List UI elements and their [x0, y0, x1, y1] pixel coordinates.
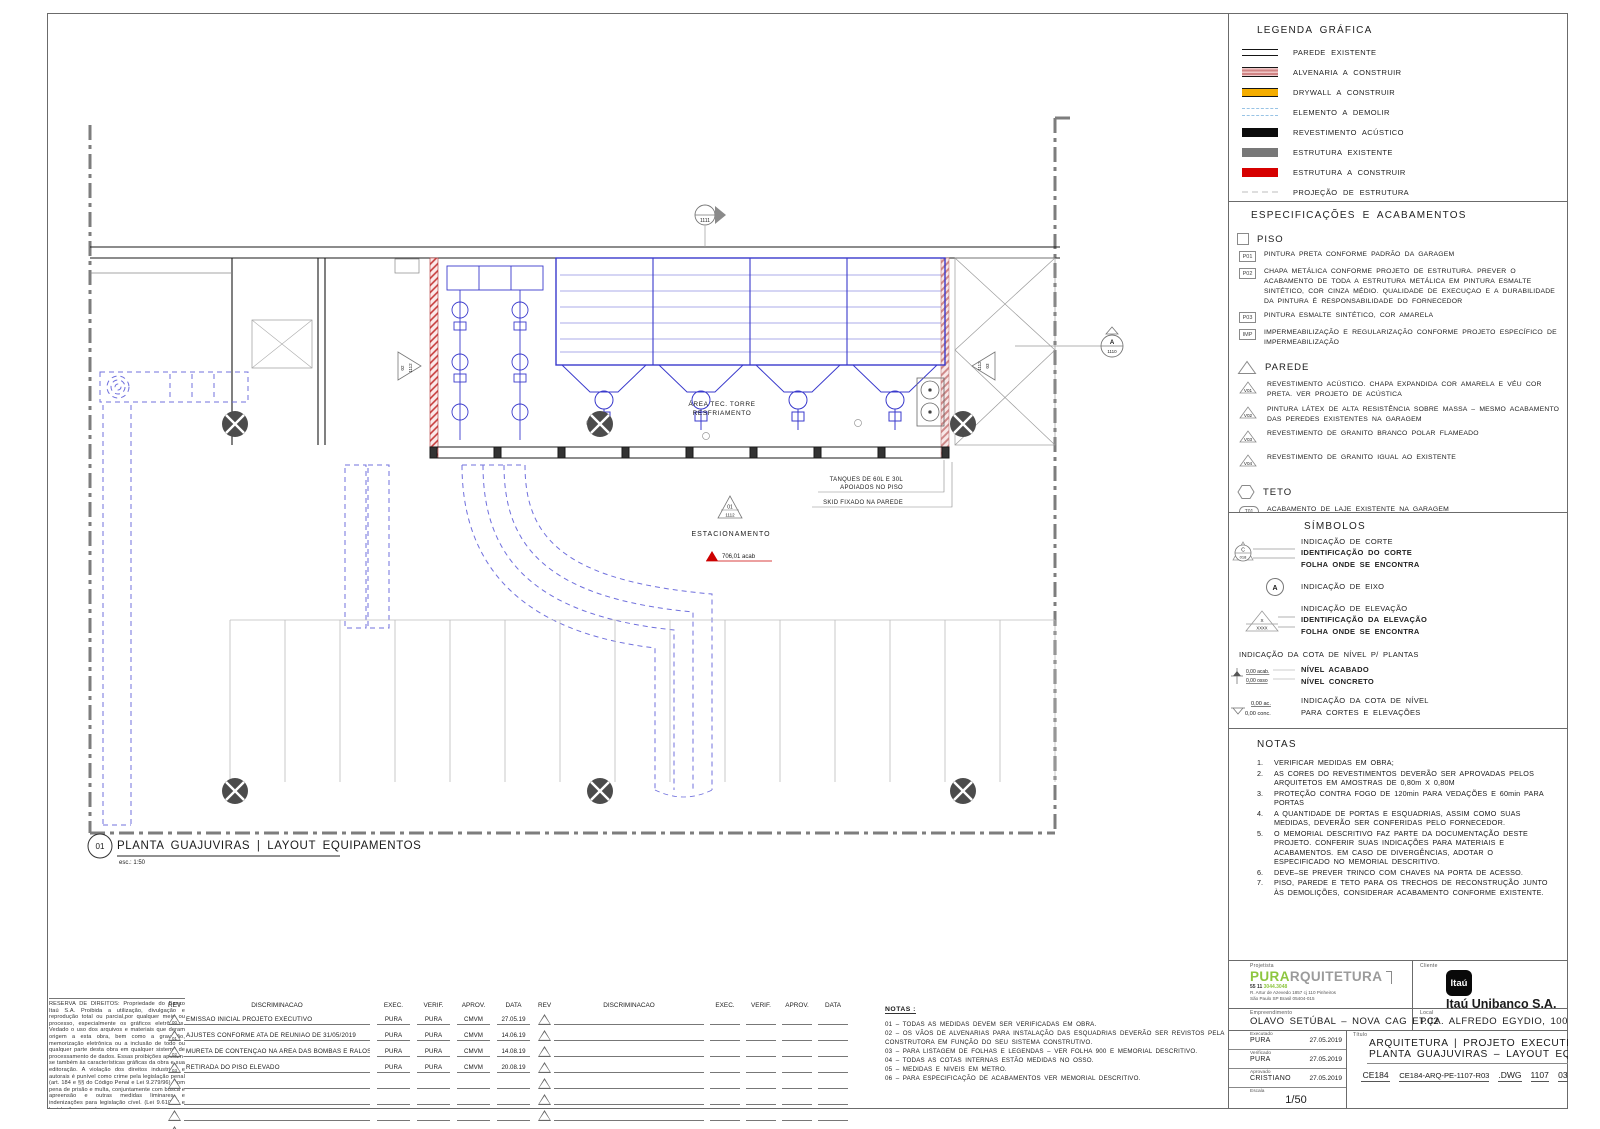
piso-symbol — [1237, 233, 1249, 245]
elevation-marker-left: 02 1112 — [398, 352, 421, 380]
piso-group-header: PISO — [1237, 233, 1568, 245]
legend-item: PROJEÇÃO DE ESTRUTURA — [1229, 182, 1568, 201]
svg-text:V04: V04 — [1244, 461, 1253, 466]
structure-projection-swatch — [1242, 191, 1278, 193]
spec-tag: V04 — [1239, 454, 1259, 472]
symbols-section: SÍMBOLOS C018 INDICAÇÃO DE CORTEIDENTIFI… — [1229, 512, 1568, 728]
revision-row-empty — [538, 1057, 848, 1073]
svg-text:1112: 1112 — [725, 513, 735, 518]
drawing-sheet: 1111 A 1110 02 1112 03 1112 01 1112 — [0, 0, 1600, 1129]
svg-text:C: C — [1241, 548, 1245, 554]
legend-item: PAREDE EXISTENTE — [1229, 42, 1568, 62]
axis-icon: A — [1229, 577, 1301, 597]
revision-triangle-icon — [538, 1078, 551, 1089]
legend-title: LEGENDA GRÁFICA — [1257, 25, 1568, 36]
revision-table-header: REV DISCRIMINACAO EXEC. VERIF. APROV. DA… — [168, 996, 530, 1009]
floor-plan: 1111 A 1110 02 1112 03 1112 01 1112 — [0, 0, 1228, 1000]
plan-title: 01 PLANTA GUAJUVIRAS | LAYOUT EQUIPAMENT… — [88, 834, 421, 866]
structure-existing-swatch — [1242, 148, 1278, 157]
spec-tag: P01 — [1239, 251, 1256, 262]
revision-row: 00 EMISSÃO INICIAL PROJETO EXECUTIVOPURA… — [168, 1009, 530, 1025]
sheet-title-1: ARQUITETURA | PROJETO EXECUTIVO — [1369, 1038, 1568, 1049]
elevation-marker-right-2: 03 1112 — [972, 352, 995, 380]
notes-bottom: NOTAS : 01 – TODAS AS MEDIDAS DEVEM SER … — [885, 998, 1230, 1084]
revision-row-empty — [538, 1073, 848, 1089]
svg-text:XXXX: XXXX — [1256, 626, 1267, 631]
spec-item: V01REVESTIMENTO ACÚSTICO. CHAPA EXPANDID… — [1239, 380, 1568, 400]
aprovado-row: Aprovado CRISTIANO27.05.2019 — [1229, 1069, 1346, 1088]
tech-room-bottom-wall — [430, 420, 949, 459]
svg-text:03: 03 — [985, 363, 990, 369]
revision-row-empty — [168, 1121, 530, 1129]
parede-symbol — [1237, 360, 1257, 375]
sheet-title-2: PLANTA GUAJUVIRAS – LAYOUT EQUIPAMENTO — [1369, 1049, 1568, 1060]
legend-section: LEGENDA GRÁFICA PAREDE EXISTENTE ALVENAR… — [1229, 13, 1568, 201]
acoustic-swatch — [1242, 128, 1278, 137]
revision-table-2: REV DISCRIMINACAO EXEC. VERIF. APROV. DA… — [538, 996, 848, 1121]
revision-triangle-icon — [538, 1110, 551, 1121]
svg-text:1110: 1110 — [1107, 349, 1117, 354]
sheet-number: 1107 — [1531, 1070, 1549, 1082]
titulo-cell: Título ARQUITETURA | PROJETO EXECUTIVO P… — [1347, 1031, 1568, 1109]
demolition-elements — [100, 372, 712, 825]
spec-tag: IMP — [1239, 329, 1256, 340]
spec-tag: V01 — [1239, 381, 1259, 400]
notes-right-section: NOTAS 1.VERIFICAR MEDIDAS EM OBRA; 2.AS … — [1229, 728, 1568, 960]
bottom-note: 03 – PARA LISTAGEM DE FOLHAS E LEGENDAS … — [885, 1048, 1230, 1057]
revision-triangle-icon — [168, 1110, 181, 1121]
level-section-icon: 0,00 ac.0,00 conc. — [1229, 695, 1301, 721]
escala-value: 1/50 — [1250, 1094, 1342, 1106]
revision-row: 02 MURETA DE CONTENÇÃO NA ÁREA DAS BOMBA… — [168, 1041, 530, 1057]
svg-text:X: X — [1260, 618, 1263, 623]
revision-row-empty — [168, 1073, 530, 1089]
area-tec-label-1: ÁREA TEC. TORRE — [688, 399, 755, 408]
revision-triangle-icon — [538, 1014, 551, 1025]
teto-symbol — [1237, 484, 1255, 500]
verificado-row: Verificado PURA27.05.2019 — [1229, 1050, 1346, 1069]
executado-row: Executado PURA27.05.2019 — [1229, 1031, 1346, 1050]
spec-item: V02PINTURA LÁTEX DE ALTA RESISTÊNCIA SOB… — [1239, 405, 1568, 425]
right-panel: LEGENDA GRÁFICA PAREDE EXISTENTE ALVENAR… — [1229, 13, 1568, 1109]
note-item: 7.PISO, PAREDE E TETO PARA OS TRECHOS DE… — [1257, 878, 1568, 897]
elevation-marker-plan: 01 1112 — [718, 496, 742, 518]
revision-row-empty — [168, 1089, 530, 1105]
masonry-swatch — [1242, 67, 1278, 77]
svg-text:01: 01 — [96, 842, 105, 851]
new-structure-wall-left — [430, 258, 438, 458]
revision-triangle-icon: 02 — [168, 1046, 181, 1057]
drywall-swatch — [1242, 88, 1278, 97]
pump-skid — [447, 266, 543, 440]
spec-item: V03REVESTIMENTO DE GRANITO BRANCO POLAR … — [1239, 429, 1568, 448]
teto-group-header: TETO — [1237, 484, 1568, 500]
svg-text:1112: 1112 — [977, 361, 982, 371]
revision-row: 01 AJUSTES CONFORME ATA DE REUNIÃO DE 31… — [168, 1025, 530, 1041]
spec-item: P01PINTURA PRETA CONFORME PADRÃO DA GARA… — [1239, 250, 1568, 262]
legend-item: DRYWALL A CONSTRUIR — [1229, 82, 1568, 102]
bottom-note: 01 – TODAS AS MEDIDAS DEVEM SER VERIFICA… — [885, 1021, 1230, 1030]
svg-text:0,00 acab.: 0,00 acab. — [1246, 669, 1269, 675]
revision-triangle-icon: 01 — [168, 1030, 181, 1041]
revision-triangle-icon — [538, 1046, 551, 1057]
svg-text:V01: V01 — [1244, 388, 1253, 393]
note-item: 5.O MEMORIAL DESCRITIVO FAZ PARTE DA DOC… — [1257, 829, 1568, 867]
structure-new-swatch — [1242, 168, 1278, 177]
projetista-cell: Projetista PURARQUITETURA 55 11 3044.304… — [1229, 961, 1413, 1009]
legend-item: ESTRUTURA EXISTENTE — [1229, 142, 1568, 162]
demolish-swatch — [1242, 108, 1278, 116]
empreendimento-cell: Empreendimento OLAVO SETÚBAL – NOVA CAG … — [1229, 1009, 1413, 1031]
symbol-corte: C018 INDICAÇÃO DE CORTEIDENTIFICAÇÃO DO … — [1229, 536, 1568, 570]
columns — [222, 411, 976, 804]
level-plan-icon: 0,00 acab.0,00 osso — [1229, 664, 1301, 688]
revision-triangle-icon — [168, 1078, 181, 1089]
revision-triangle-icon: 03 — [168, 1062, 181, 1073]
svg-text:706,01 acab: 706,01 acab — [722, 554, 756, 560]
spec-item: P03PINTURA ESMALTE SINTÉTICO, COR AMAREL… — [1239, 311, 1568, 323]
svg-text:1112: 1112 — [408, 363, 413, 373]
revision-row-empty — [538, 1105, 848, 1121]
area-tec-label-2: RESFRIAMENTO — [693, 410, 752, 417]
svg-text:V02: V02 — [1244, 413, 1253, 418]
note-item: 1.VERIFICAR MEDIDAS EM OBRA; — [1257, 758, 1568, 768]
svg-text:01: 01 — [727, 505, 733, 511]
signatures-column: Executado PURA27.05.2019 Verificado PURA… — [1229, 1031, 1347, 1109]
revision-triangle-icon — [168, 1094, 181, 1105]
spec-tag: V03 — [1239, 430, 1259, 448]
legend-item: ELEMENTO A DEMOLIR — [1229, 102, 1568, 122]
legend-item: ALVENARIA A CONSTRUIR — [1229, 62, 1568, 82]
title-block: Projetista PURARQUITETURA 55 11 3044.304… — [1229, 960, 1568, 1109]
note-item: 3.PROTEÇÃO CONTRA FOGO DE 120min PARA VE… — [1257, 789, 1568, 808]
parking-stalls — [230, 620, 1055, 782]
specs-section: ESPECIFICAÇÕES E ACABAMENTOS PISO P01PIN… — [1229, 201, 1568, 512]
note-item: 6.DEVE–SE PREVER TRINCO COM CHAVES NA PO… — [1257, 868, 1568, 878]
brand-bracket-icon — [1386, 971, 1392, 984]
revision-row-empty — [538, 1089, 848, 1105]
existing-wall-swatch — [1242, 49, 1278, 56]
spec-item: IMPIMPERMEABILIZAÇÃO E REGULARIZAÇÃO CON… — [1239, 328, 1568, 348]
codes-row: CE184 CE184-ARQ-PE-1107-R03 .DWG 1107 03 — [1361, 1070, 1568, 1082]
parking-label: ESTACIONAMENTO — [691, 531, 770, 538]
svg-text:SKID FIXADO NA PAREDE: SKID FIXADO NA PAREDE — [823, 500, 903, 506]
revision-row-empty — [538, 1041, 848, 1057]
note-item: 4.A QUANTIDADE DE PORTAS E ESQUADRIAS, A… — [1257, 809, 1568, 828]
parede-group-header: PAREDE — [1237, 360, 1568, 375]
wall-skid — [917, 378, 944, 426]
bottom-note: 04 – TODAS AS COTAS INTERNAS ESTÃO MEDID… — [885, 1057, 1230, 1066]
spec-item: V04REVESTIMENTO DE GRANITO IGUAL AO EXIS… — [1239, 453, 1568, 472]
revision-triangle-icon — [538, 1030, 551, 1041]
notes-title: NOTAS — [1257, 739, 1568, 750]
svg-text:0,00 osso: 0,00 osso — [1246, 678, 1268, 684]
section-marker-top: 1111 — [695, 205, 726, 247]
specs-title: ESPECIFICAÇÕES E ACABAMENTOS — [1251, 210, 1568, 221]
notes-bottom-title: NOTAS : — [885, 1006, 916, 1014]
svg-text:0,00 conc.: 0,00 conc. — [1245, 711, 1271, 717]
revision-row: 03 RETIRADA DO PISO ELEVADOPURAPURACMVM2… — [168, 1057, 530, 1073]
symbol-cota-cortes: 0,00 ac.0,00 conc. INDICAÇÃO DA COTA DE … — [1229, 695, 1568, 721]
svg-text:018: 018 — [1240, 555, 1247, 560]
legend-item: REVESTIMENTO ACÚSTICO — [1229, 122, 1568, 142]
project-code: CE184 — [1361, 1070, 1390, 1082]
structure-projection-boundary — [90, 118, 1075, 833]
spec-tag: P02 — [1239, 268, 1256, 279]
bottom-note: 02 – OS VÃOS DE ALVENARIAS PARA INSTALAÇ… — [885, 1030, 1230, 1048]
revision-row-empty — [168, 1105, 530, 1121]
section-cut-icon: C018 — [1229, 536, 1301, 570]
file-code: CE184-ARQ-PE-1107-R03 — [1399, 1071, 1489, 1082]
svg-text:PLANTA GUAJUVIRAS | LAYOUT EQU: PLANTA GUAJUVIRAS | LAYOUT EQUIPAMENTOS — [117, 840, 421, 852]
symbol-elevacao: XXXXX INDICAÇÃO DE ELEVAÇÃOIDENTIFICAÇÃO… — [1229, 603, 1568, 643]
symbol-cota-plantas: INDICAÇÃO DA COTA DE NÍVEL P/ PLANTAS 0,… — [1229, 649, 1568, 688]
elevation-icon: XXXXX — [1229, 603, 1301, 643]
spec-tag: P03 — [1239, 312, 1256, 323]
local-cell: Local PÇA. ALFREDO EGYDIO, 100 — [1413, 1009, 1568, 1031]
copyright-text: RESERVA DE DIREITOS: Propriedade do Banc… — [49, 998, 185, 1108]
note-item: 2.AS CORES DO REVESTIMENTOS DEVERÃO SER … — [1257, 769, 1568, 788]
bottom-note: 05 – MEDIDAS E NIVEIS EM METRO. — [885, 1066, 1230, 1075]
revision-table: REV DISCRIMINACAO EXEC. VERIF. APROV. DA… — [168, 996, 530, 1129]
revision-triangle-icon — [538, 1062, 551, 1073]
bottom-note: 06 – PARA ESPECIFICAÇÃO DE ACABAMENTOS V… — [885, 1075, 1230, 1084]
revision-number: 03 — [1558, 1070, 1568, 1082]
svg-text:1111: 1111 — [700, 218, 710, 224]
spec-item: P02CHAPA METÁLICA CONFORME PROJETO DE ES… — [1239, 267, 1568, 306]
legend-item: ESTRUTURA A CONSTRUIR — [1229, 162, 1568, 182]
svg-text:esc.: 1:50: esc.: 1:50 — [119, 860, 146, 866]
escala-row: Escala 1/50 — [1229, 1088, 1346, 1106]
level-marker: 706,01 acab — [706, 551, 772, 561]
itau-logo: Itaú — [1446, 970, 1472, 996]
svg-text:0,00 ac.: 0,00 ac. — [1251, 701, 1271, 707]
revision-row-empty — [538, 1009, 848, 1025]
symbols-title: SÍMBOLOS — [1304, 521, 1568, 532]
revision-triangle-icon: 00 — [168, 1014, 181, 1025]
svg-text:TANQUES DE 60L E 30L: TANQUES DE 60L E 30L — [830, 477, 904, 483]
revision-triangle-icon — [538, 1094, 551, 1105]
svg-text:02: 02 — [400, 365, 405, 371]
firm-logo: PURARQUITETURA — [1250, 969, 1412, 984]
elevation-marker-right: A 1110 — [1015, 327, 1123, 357]
svg-text:APOIADOS NO PISO: APOIADOS NO PISO — [840, 485, 903, 491]
revision-table-header: REV DISCRIMINACAO EXEC. VERIF. APROV. DA… — [538, 996, 848, 1009]
cliente-cell: Cliente Itaú Itaú Unibanco S.A. — [1413, 961, 1568, 1009]
file-ext: .DWG — [1498, 1070, 1521, 1082]
symbol-eixo: A INDICAÇÃO DE EIXO — [1229, 577, 1568, 597]
svg-text:A: A — [1272, 585, 1277, 592]
svg-text:V03: V03 — [1244, 437, 1253, 442]
spec-tag: V02 — [1239, 406, 1259, 425]
svg-text:A: A — [1110, 340, 1115, 346]
revision-row-empty — [538, 1025, 848, 1041]
callout-tanques: TANQUES DE 60L E 30L APOIADOS NO PISO — [818, 460, 944, 492]
